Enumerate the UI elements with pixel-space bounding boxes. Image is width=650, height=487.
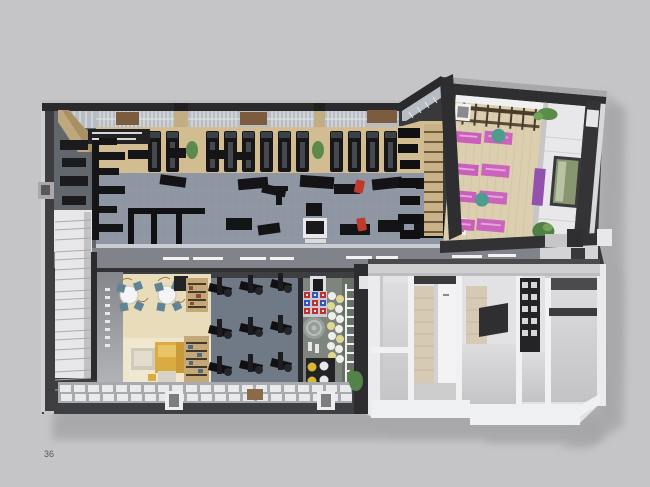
svg-text:36: 36 xyxy=(44,449,54,459)
